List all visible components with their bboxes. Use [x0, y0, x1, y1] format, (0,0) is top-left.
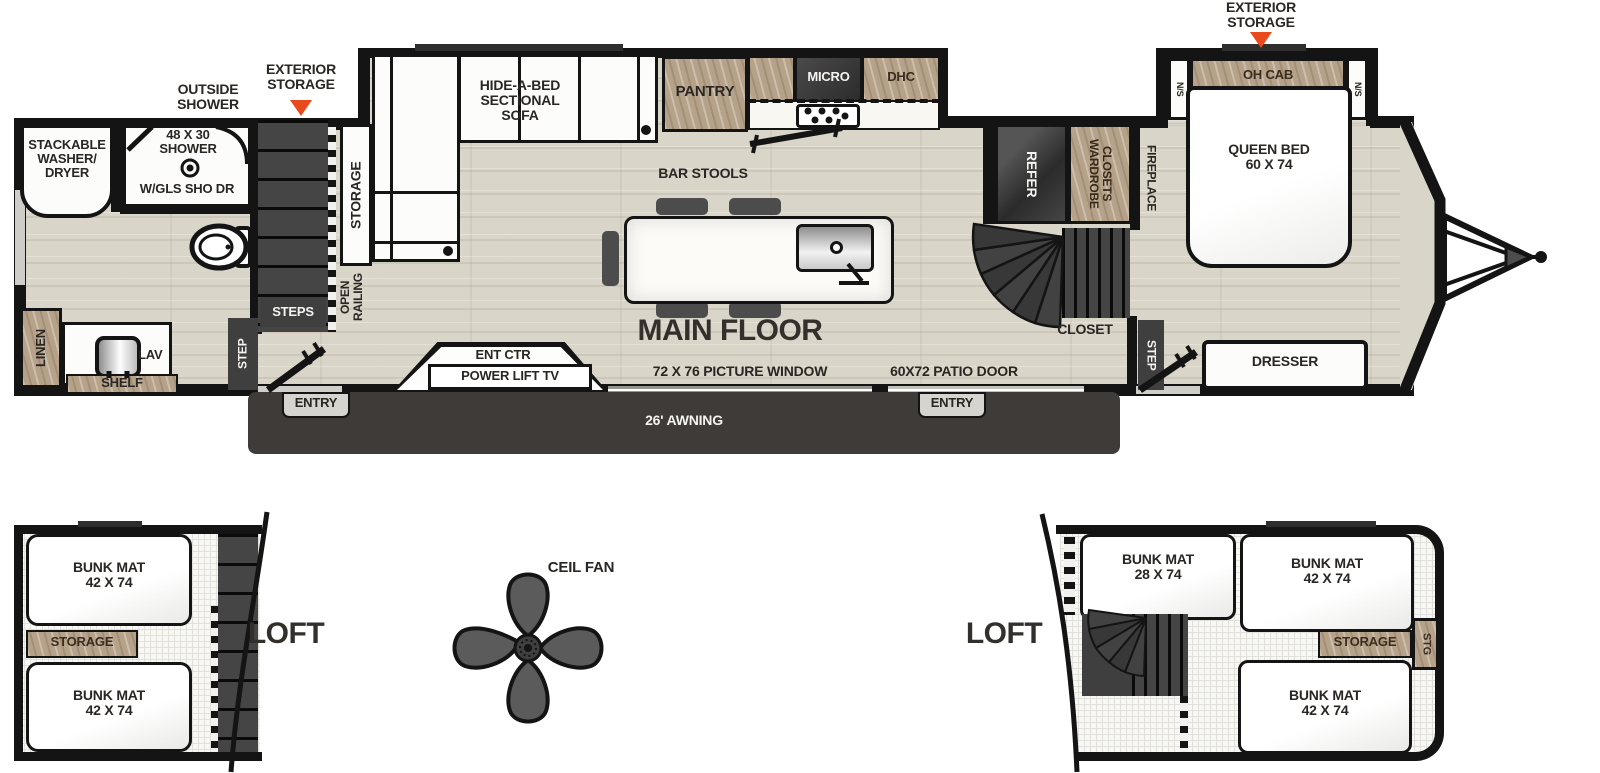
loft-left-bunk-bottom-label: BUNK MAT 42 X 74 — [26, 688, 192, 718]
outside-shower-label: OUTSIDE SHOWER — [158, 82, 258, 112]
loft-right-bunk-top-label: BUNK MAT 42 X 74 — [1240, 556, 1414, 586]
main-floor-title: MAIN FLOOR — [610, 315, 850, 347]
micro-label: MICRO — [795, 70, 862, 84]
entry-left-label: ENTRY — [282, 396, 350, 410]
ceil-fan-label: CEIL FAN — [536, 560, 626, 576]
awning-label: 26' AWNING — [248, 413, 1120, 428]
loft-right-bunk-left-label: BUNK MAT 28 X 74 — [1080, 552, 1236, 582]
loft-right-bunk-bottom-label: BUNK MAT 42 X 74 — [1238, 688, 1412, 718]
loft-left-storage-label: STORAGE — [26, 635, 138, 649]
shelf-label: SHELF — [66, 376, 178, 390]
fireplace-label: FIREPLACE — [1140, 128, 1162, 228]
step-right-label: STEP — [1138, 322, 1164, 388]
patio-door-label: 60X72 PATIO DOOR — [874, 364, 1034, 379]
dhc-label: DHC — [862, 70, 940, 84]
picture-window-label: 72 X 76 PICTURE WINDOW — [614, 364, 866, 379]
closet-label: CLOSET — [1044, 322, 1126, 337]
floorplan-canvas: OUTSIDE SHOWER EXTERIOR STORAGE EXTERIOR… — [0, 0, 1600, 773]
steps-label: STEPS — [260, 305, 326, 319]
lav-label: LAV — [138, 348, 174, 362]
exterior-storage-right-marker-icon — [1250, 32, 1272, 48]
exterior-storage-right-label: EXTERIOR STORAGE — [1218, 0, 1304, 30]
ent-ctr-label: ENT CTR — [428, 348, 578, 362]
washer-dryer-label: STACKABLE WASHER/ DRYER — [20, 138, 114, 180]
sofa-label: HIDE-A-BED SECTIONAL SOFA — [445, 78, 595, 123]
exterior-storage-left-label: EXTERIOR STORAGE — [258, 62, 344, 92]
stair-storage-label: STORAGE — [340, 128, 372, 262]
wardrobe-label: WARDROBE CLOSETS — [1068, 124, 1132, 224]
linen-label: LINEN — [22, 310, 60, 386]
power-lift-tv-label: POWER LIFT TV — [428, 369, 592, 383]
ns-left-label: N/S — [1168, 60, 1190, 118]
exterior-storage-left-marker-icon — [290, 100, 312, 116]
loft-right-stg-label: STG — [1412, 620, 1439, 668]
bar-stools-label: BAR STOOLS — [648, 166, 758, 181]
queen-bed-label: QUEEN BED 60 X 74 — [1196, 142, 1342, 172]
pantry-label: PANTRY — [664, 84, 746, 100]
open-railing-label: OPEN RAILING — [332, 256, 372, 338]
step-left-label: STEP — [230, 320, 256, 388]
entry-right-label: ENTRY — [918, 396, 986, 410]
labels-layer: OUTSIDE SHOWER EXTERIOR STORAGE EXTERIOR… — [0, 0, 1600, 773]
oh-cab-label: OH CAB — [1190, 68, 1346, 82]
shower-size-label: 48 X 30 SHOWER — [128, 128, 248, 156]
loft-right-storage-label: STORAGE — [1318, 635, 1412, 649]
shower-door-label: W/GLS SHO DR — [120, 182, 254, 196]
loft-left-title: LOFT — [240, 618, 332, 650]
loft-left-bunk-top-label: BUNK MAT 42 X 74 — [26, 560, 192, 590]
refer-label: REFER — [995, 124, 1068, 224]
ns-right-label: N/S — [1346, 60, 1368, 118]
dresser-label: DRESSER — [1202, 354, 1368, 369]
loft-right-title: LOFT — [956, 618, 1052, 650]
